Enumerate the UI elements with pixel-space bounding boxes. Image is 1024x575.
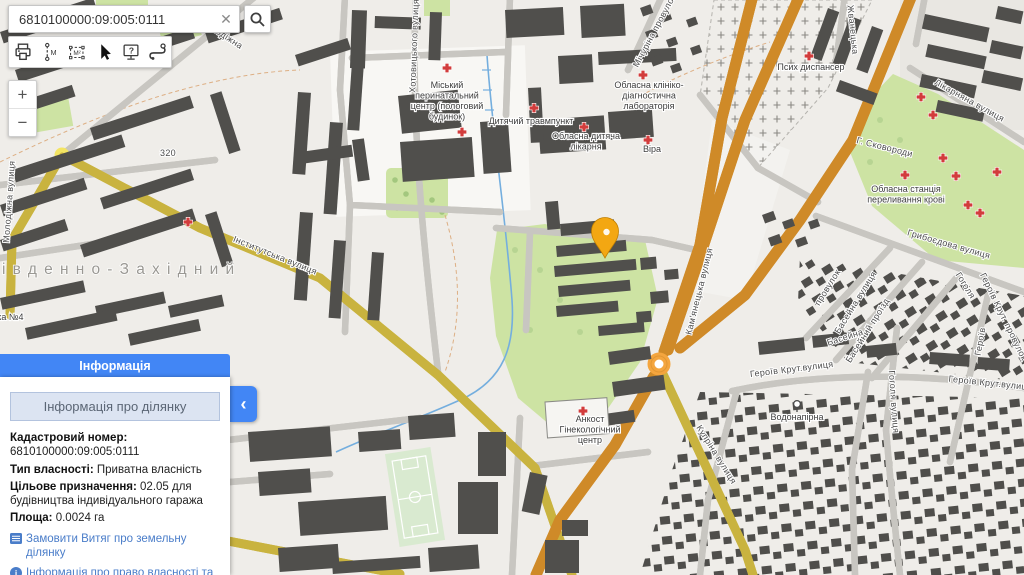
poi-label: Віра	[643, 144, 661, 154]
route-icon	[147, 41, 169, 63]
sports-field	[385, 447, 445, 547]
search-input[interactable]	[9, 12, 213, 27]
printer-icon	[12, 41, 34, 63]
area-field: Площа: 0.0024 га	[10, 511, 220, 525]
panel-collapse-button[interactable]: ‹	[230, 386, 257, 422]
district-label: івденно-Західний	[2, 261, 241, 278]
cadastral-number-value: 6810100000:09:005:0111	[10, 446, 139, 458]
poi-label: Обласна станціяпереливання крові	[867, 184, 945, 205]
svg-text:i: i	[15, 568, 17, 575]
ownership-rights-link[interactable]: i Інформація про право власності та речо…	[10, 566, 220, 575]
zoom-control: + −	[8, 80, 37, 137]
info-panel-title: Інформація	[79, 359, 150, 373]
measure-area-tool-button[interactable]: M²	[63, 38, 90, 66]
search-button[interactable]	[244, 5, 271, 33]
poi-label: Псих диспансер	[777, 62, 844, 72]
measure-distance-tool-button[interactable]: M	[36, 38, 63, 66]
svg-text:M: M	[50, 48, 56, 57]
purpose-field: Цільове призначення: 02.05 для будівницт…	[10, 480, 220, 509]
cadastral-number-field: Кадастровий номер: 6810100000:09:005:011…	[10, 431, 220, 460]
cursor-icon	[93, 41, 115, 63]
measure-route-tool-button[interactable]	[144, 38, 171, 66]
info-panel-header: Інформація	[0, 354, 230, 377]
ownership-type-field: Тип власності: Приватна власність	[10, 463, 220, 477]
cadastral-map-app: івденно-Західний Молодіжна вулицяМолодіж…	[0, 0, 1024, 575]
search-icon	[249, 11, 266, 28]
poi-label: Водонапірна	[771, 412, 824, 422]
poi-label: Поліклініка №4	[0, 312, 24, 322]
info-panel: Інформація про ділянку Кадастровий номер…	[0, 377, 230, 575]
search-box: ✕	[8, 5, 240, 33]
svg-text:?: ?	[128, 45, 133, 55]
select-pointer-tool-button[interactable]	[90, 38, 117, 66]
poi-label: Обласна клініко-діагностичналабораторія	[614, 80, 683, 111]
parcel-info-section-title: Інформація про ділянку	[10, 392, 220, 421]
measure-area-icon: M²	[66, 41, 88, 63]
print-tool-button[interactable]	[9, 38, 36, 66]
street-label: 320	[160, 148, 176, 158]
map-toolbar: M M² ?	[8, 36, 172, 68]
order-extract-link[interactable]: Замовити Витяг про земельну ділянку	[10, 532, 220, 560]
info-circle-icon: i	[10, 567, 22, 575]
help-monitor-icon: ?	[120, 41, 142, 63]
svg-text:M²: M²	[73, 50, 81, 57]
clear-search-icon[interactable]: ✕	[213, 6, 239, 32]
parcel-fields: Кадастровий номер: 6810100000:09:005:011…	[10, 431, 220, 526]
help-tool-button[interactable]: ?	[117, 38, 144, 66]
red-cross-icon	[639, 71, 648, 80]
poi-label: Дитячий травмпункт	[489, 116, 574, 126]
measure-distance-icon: M	[39, 41, 61, 63]
zoom-out-button[interactable]: −	[9, 108, 36, 136]
extract-table-icon	[10, 533, 22, 544]
chevron-left-icon: ‹	[241, 394, 247, 415]
zoom-in-button[interactable]: +	[9, 81, 36, 108]
